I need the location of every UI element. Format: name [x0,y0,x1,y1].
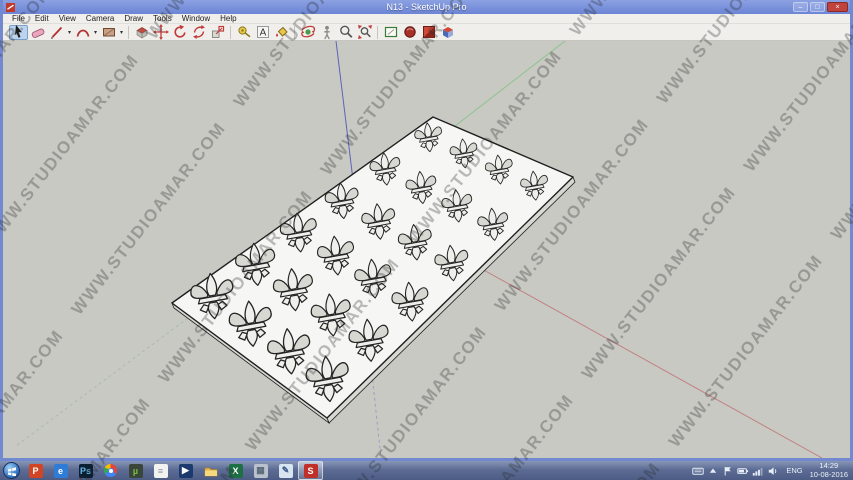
utorrent-taskbar-button[interactable]: µ [123,461,148,480]
menu-bar: FileEditViewCameraDrawToolsWindowHelp [3,14,850,24]
chrome-icon [104,464,117,477]
tool-text-button[interactable]: A [253,25,272,40]
internet-explorer-icon: e [54,464,68,478]
toolbar: ▾▾▾A [3,24,850,41]
toolbar-separator [377,26,378,39]
tool-section-plane-button[interactable] [381,25,400,40]
tool-rotate-button[interactable] [170,25,189,40]
excel-taskbar-button[interactable]: X [223,461,248,480]
arc-icon [75,24,91,40]
tool-rectangle-button[interactable] [99,25,118,40]
file-explorer-taskbar-button[interactable] [198,461,223,480]
blue-axis [336,41,353,180]
sketchup-window: N13 - SketchUp Pro –□× FileEditViewCamer… [0,0,853,461]
tray-date: 10-08-2016 [810,471,848,480]
window-title: N13 - SketchUp Pro [3,0,850,14]
tool-zoom-button[interactable] [336,25,355,40]
windows-flag-icon [7,466,17,476]
tool-tape-measure-button[interactable] [234,25,253,40]
photoshop-taskbar-button[interactable]: Ps [73,461,98,480]
tool-arc-button[interactable] [73,25,92,40]
menu-draw[interactable]: Draw [119,14,148,23]
move-icon [153,24,169,40]
model-canvas[interactable] [3,41,850,458]
tool-orbit-button[interactable] [298,25,317,40]
tool-select-button[interactable] [9,25,28,40]
clock[interactable]: 14:29 10-08-2016 [810,462,850,479]
tool-offset-button[interactable] [189,25,208,40]
photoshop-icon: Ps [79,464,93,478]
volume-tray-icon[interactable] [767,465,779,477]
viewport-3d[interactable] [3,41,850,458]
system-tray: ENG 14:29 10-08-2016 [692,462,853,479]
styles-icon [402,24,418,40]
green-axis [455,41,565,126]
internet-explorer-taskbar-button[interactable]: e [48,461,73,480]
toolbar-separator [230,26,231,39]
rectangle-icon [101,24,117,40]
battery-tray-icon[interactable] [737,465,749,477]
menu-tools[interactable]: Tools [148,14,177,23]
paint-bucket-icon [274,24,290,40]
model-info-icon [440,24,456,40]
menu-window[interactable]: Window [177,14,215,23]
media-player-taskbar-button[interactable]: ▶ [173,461,198,480]
file-explorer-icon [204,465,218,477]
tool-shadows-button[interactable] [419,25,438,40]
shadows-icon [421,24,437,40]
utorrent-icon: µ [129,464,143,478]
offset-icon [191,24,207,40]
app-grey-taskbar-button[interactable]: ▦ [248,461,273,480]
tool-zoom-extents-button[interactable] [355,25,374,40]
language-indicator[interactable]: ENG [783,466,805,475]
taskbar: PePsµ≡▶X▦✎S ENG 14:29 10-08-2016 [0,461,853,480]
sketchup-taskbar-button[interactable]: S [298,461,323,480]
app-grey-icon: ▦ [254,464,268,478]
chrome-taskbar-button[interactable] [98,461,123,480]
paint-icon: ✎ [279,464,293,478]
tool-push-pull-button[interactable] [132,25,151,40]
powerpoint-icon: P [29,464,43,478]
flag-tray-icon[interactable] [722,465,734,477]
show-hidden-tray-icon[interactable] [707,465,719,477]
start-button[interactable] [3,462,20,479]
screen: N13 - SketchUp Pro –□× FileEditViewCamer… [0,0,853,480]
media-player-icon: ▶ [179,464,193,478]
line-icon [49,24,65,40]
caption-buttons: –□× [793,2,848,12]
text-icon: A [255,24,271,40]
rotate-icon [172,24,188,40]
sketchup-icon: S [304,464,318,478]
blue-axis-negative [372,374,381,458]
document-icon: ≡ [154,464,168,478]
menu-edit[interactable]: Edit [30,14,54,23]
zoom-extents-icon [357,24,373,40]
tool-line-dropdown[interactable]: ▾ [66,29,73,36]
taskbar-apps: PePsµ≡▶X▦✎S [23,461,323,480]
tool-model-info-button[interactable] [438,25,457,40]
select-icon [11,24,27,40]
red-axis [480,268,822,458]
tool-arc-dropdown[interactable]: ▾ [92,29,99,36]
tool-position-camera-button[interactable] [317,25,336,40]
tool-line-button[interactable] [47,25,66,40]
tool-paint-bucket-button[interactable] [272,25,291,40]
push-pull-icon [134,24,150,40]
document-taskbar-button[interactable]: ≡ [148,461,173,480]
tool-rectangle-dropdown[interactable]: ▾ [118,29,125,36]
powerpoint-taskbar-button[interactable]: P [23,461,48,480]
maximize-button[interactable]: □ [810,2,825,12]
orbit-icon [300,24,316,40]
paint-taskbar-button[interactable]: ✎ [273,461,298,480]
toolbar-separator [128,26,129,39]
menu-help[interactable]: Help [215,14,241,23]
menu-file[interactable]: File [7,14,30,23]
scale-icon [210,24,226,40]
eraser-icon [30,24,46,40]
tool-styles-button[interactable] [400,25,419,40]
network-tray-icon[interactable] [752,465,764,477]
tape-measure-icon [236,24,252,40]
position-camera-icon [319,24,335,40]
zoom-icon [338,24,354,40]
close-button[interactable]: × [827,2,848,12]
tray-icons [692,465,779,477]
svg-text:A: A [259,28,266,39]
keyboard-tray-icon[interactable] [692,465,704,477]
excel-icon: X [229,464,243,478]
tool-scale-button[interactable] [208,25,227,40]
menu-camera[interactable]: Camera [81,14,119,23]
section-plane-icon [383,24,399,40]
tool-move-button[interactable] [151,25,170,40]
tool-eraser-button[interactable] [28,25,47,40]
toolbar-separator [294,26,295,39]
menu-view[interactable]: View [54,14,81,23]
minimize-button[interactable]: – [793,2,808,12]
title-bar[interactable]: N13 - SketchUp Pro –□× [3,0,850,14]
green-axis-negative [16,318,188,446]
